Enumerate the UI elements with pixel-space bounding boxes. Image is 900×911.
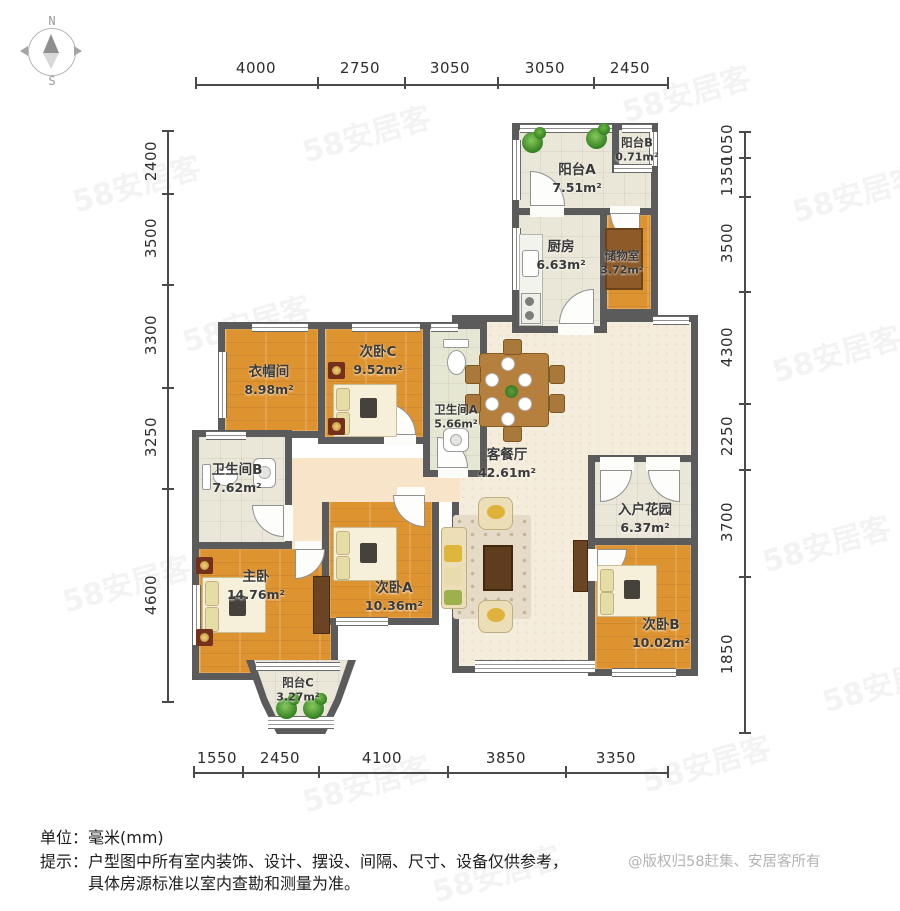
dim-tick (739, 291, 751, 293)
dim-tick (193, 766, 195, 778)
watermark-text: 58安居客 (756, 503, 895, 582)
sink-basin (450, 434, 462, 446)
room-area: 3.72m² (600, 263, 643, 277)
compass-needle-south (43, 53, 59, 69)
footer-hint-line1: 提示：户型图中所有室内装饰、设计、摆设、间隔、尺寸、设备仅供参考， (40, 848, 568, 872)
dim-label: 3850 (486, 749, 526, 767)
room-label-bath-a: 卫生间A5.66m² (434, 402, 477, 431)
dim-tick (162, 193, 174, 195)
room-name: 阳台A (552, 162, 601, 180)
dim-tick (162, 130, 174, 132)
compass-needle-north (43, 34, 59, 53)
sofa-cushion (444, 568, 462, 585)
bed-pillow (600, 592, 614, 615)
window (206, 431, 246, 440)
room-name: 卫生间A (434, 402, 477, 417)
balcony-plant (586, 128, 607, 149)
bed-blanket (360, 543, 377, 563)
dim-tick (447, 766, 449, 778)
room-area: 9.52m² (353, 362, 402, 378)
room-name: 阳台B (615, 135, 658, 150)
dim-tick (667, 766, 669, 778)
dim-label: 2450 (260, 749, 300, 767)
table-plate (501, 357, 515, 371)
stove-burner (525, 311, 534, 320)
room-area: 10.36m² (365, 598, 423, 614)
watermark-text: 58安居客 (636, 723, 775, 802)
sofa-cushion (444, 590, 462, 605)
window (653, 316, 689, 325)
dim-tick (195, 77, 197, 89)
footer-hint-line2: 具体房源标准以室内查勘和测量为准。 (88, 870, 360, 894)
dim-label: 2400 (142, 141, 160, 181)
room-name: 次卧C (353, 344, 402, 362)
dim-label: 1850 (718, 634, 736, 674)
compass-north-label: N (48, 14, 55, 28)
dining-chair (549, 365, 565, 384)
wardrobe (313, 576, 330, 634)
dim-line-right (744, 131, 746, 733)
compass-arrow-west (20, 46, 28, 56)
footer-copyright: @版权归58赶集、安居客所有 (628, 850, 820, 871)
room-name: 主卧 (227, 569, 285, 587)
room-area: 7.62m² (212, 480, 263, 496)
room-label-kitchen: 厨房6.63m² (536, 239, 585, 273)
window (512, 140, 521, 200)
table-plate (518, 397, 532, 411)
room-label-garden: 入户花园6.37m² (618, 502, 672, 536)
room-label-bedroom-b: 次卧B10.02m² (632, 617, 690, 651)
room-label-master: 主卧14.76m² (227, 569, 285, 603)
room-area: 3.27m² (276, 690, 319, 704)
room-label-storage: 储物室3.72m² (600, 248, 643, 277)
room-label-balcony-a: 阳台A7.51m² (552, 162, 601, 196)
dim-label: 4100 (362, 749, 402, 767)
dining-chair (549, 394, 565, 413)
room-label-balcony-c: 阳台C3.27m² (276, 675, 319, 704)
dim-label: 2750 (340, 59, 380, 77)
window (431, 323, 458, 332)
dining-chair (503, 426, 522, 442)
dim-tick (739, 403, 751, 405)
toilet-bowl (447, 350, 466, 375)
dim-tick (739, 469, 751, 471)
dim-line-bottom (193, 772, 668, 774)
room-name: 卫生间B (212, 462, 263, 480)
wall-sconce (196, 557, 213, 574)
dim-tick (404, 77, 406, 89)
dim-line-left (167, 130, 169, 702)
room-area: 10.02m² (632, 635, 690, 651)
dim-tick (162, 701, 174, 703)
dim-tick (739, 157, 751, 159)
compass-arrow-east (74, 46, 82, 56)
dim-tick (162, 387, 174, 389)
bed-pillow (336, 556, 350, 580)
window (622, 124, 652, 133)
window (252, 323, 308, 332)
balcony-plant (522, 132, 543, 153)
room-name: 客餐厅 (478, 447, 536, 465)
room-area: 7.51m² (552, 180, 601, 196)
wall-sconce (328, 362, 345, 379)
watermark-text: 58安居客 (66, 143, 205, 222)
floorplan-canvas: 58安居客 58安居客 58安居客 58安居客 58安居客 58安居客 58安居… (0, 0, 900, 900)
window (352, 323, 420, 332)
dim-label: 1550 (197, 749, 237, 767)
room-label-living: 客餐厅42.61m² (478, 447, 536, 481)
dim-tick (739, 576, 751, 578)
footer-unit-text: 单位：毫米(mm) (40, 824, 164, 848)
coffee-table (483, 545, 513, 591)
bed-blanket (360, 398, 377, 418)
window (256, 662, 340, 671)
dim-label: 3050 (430, 59, 470, 77)
room-label-balcony-b: 阳台B0.71m² (615, 135, 658, 164)
room-name: 次卧A (365, 580, 423, 598)
dim-tick (162, 284, 174, 286)
dim-label: 4300 (718, 327, 736, 367)
dim-label: 3700 (718, 502, 736, 542)
dim-label: 3500 (142, 218, 160, 258)
window (336, 617, 388, 626)
bed-pillow (336, 388, 350, 411)
room-area: 0.71m² (615, 150, 658, 164)
compass-south-label: S (48, 74, 55, 88)
room-name: 入户花园 (618, 502, 672, 520)
wall-sconce (328, 418, 345, 435)
room-label-cloakroom: 衣帽间8.98m² (244, 364, 293, 398)
door-gap (646, 457, 680, 471)
window (218, 352, 227, 418)
door-gap (558, 324, 594, 335)
dim-tick (565, 766, 567, 778)
floor-patch (594, 322, 610, 461)
watermark-text: 58安居客 (816, 643, 900, 722)
dim-tick (162, 488, 174, 490)
bed-pillow (336, 531, 350, 555)
bed-pillow (600, 569, 614, 592)
dim-label: 3050 (525, 59, 565, 77)
room-name: 衣帽间 (244, 364, 293, 382)
dim-label: 1350 (718, 156, 736, 196)
bed-blanket (624, 580, 640, 599)
wall-sconce (196, 629, 213, 646)
armchair-cushion (487, 608, 505, 622)
room-area: 6.63m² (536, 257, 585, 273)
dim-tick (593, 77, 595, 89)
room-area: 5.66m² (434, 417, 477, 431)
dining-chair (465, 365, 481, 384)
room-area: 8.98m² (244, 382, 293, 398)
room-name: 次卧B (632, 617, 690, 635)
compass: N S (18, 12, 86, 92)
dim-label: 2250 (718, 416, 736, 456)
dim-tick (739, 196, 751, 198)
window (268, 716, 334, 729)
door-gap (600, 457, 634, 471)
room-name: 阳台C (276, 675, 319, 690)
armchair-cushion (487, 505, 505, 519)
dim-label: 4600 (142, 575, 160, 615)
sofa-cushion (444, 545, 462, 562)
door-gap (284, 505, 293, 541)
room-label-bath-b: 卫生间B7.62m² (212, 462, 263, 496)
room-area: 6.37m² (618, 520, 672, 536)
table-plate (501, 412, 515, 426)
table-plate (485, 373, 499, 387)
room-label-bedroom-a: 次卧A10.36m² (365, 580, 423, 614)
window (612, 668, 676, 677)
table-plant (505, 385, 518, 398)
dim-label: 3300 (142, 315, 160, 355)
dining-chair (503, 339, 522, 355)
room-label-bedroom-c: 次卧C9.52m² (353, 344, 402, 378)
table-plate (485, 397, 499, 411)
room-name: 储物室 (600, 248, 643, 263)
dim-label: 3500 (718, 223, 736, 263)
room-name: 厨房 (536, 239, 585, 257)
watermark-text: 58安居客 (766, 313, 900, 392)
dim-line-top (195, 84, 668, 86)
dim-tick (667, 77, 669, 89)
window (614, 164, 652, 173)
stove-burner (525, 297, 534, 306)
window (475, 660, 595, 673)
tv-cabinet (573, 540, 588, 592)
dim-label: 4000 (236, 59, 276, 77)
toilet-tank (202, 464, 211, 490)
dim-tick (317, 77, 319, 89)
door-gap (530, 206, 564, 217)
dim-label: 3350 (596, 749, 636, 767)
room-area: 42.61m² (478, 465, 536, 481)
door-gap (587, 549, 597, 581)
watermark-text: 58安居客 (296, 93, 435, 172)
dim-tick (242, 766, 244, 778)
door-gap (438, 468, 468, 478)
dim-tick (318, 766, 320, 778)
dim-tick (739, 732, 751, 734)
room-area: 14.76m² (227, 587, 285, 603)
dim-label: 2450 (610, 59, 650, 77)
room-living-dining-ext (601, 315, 698, 470)
watermark-text: 58安居客 (786, 153, 900, 232)
watermark-text: 58安居客 (56, 543, 195, 622)
dim-label: 3250 (142, 417, 160, 457)
dim-tick (739, 131, 751, 133)
dim-tick (497, 77, 499, 89)
toilet-tank (443, 339, 469, 348)
hallway-floor (292, 458, 322, 549)
bed-pillow (205, 581, 219, 606)
table-plate (518, 373, 532, 387)
